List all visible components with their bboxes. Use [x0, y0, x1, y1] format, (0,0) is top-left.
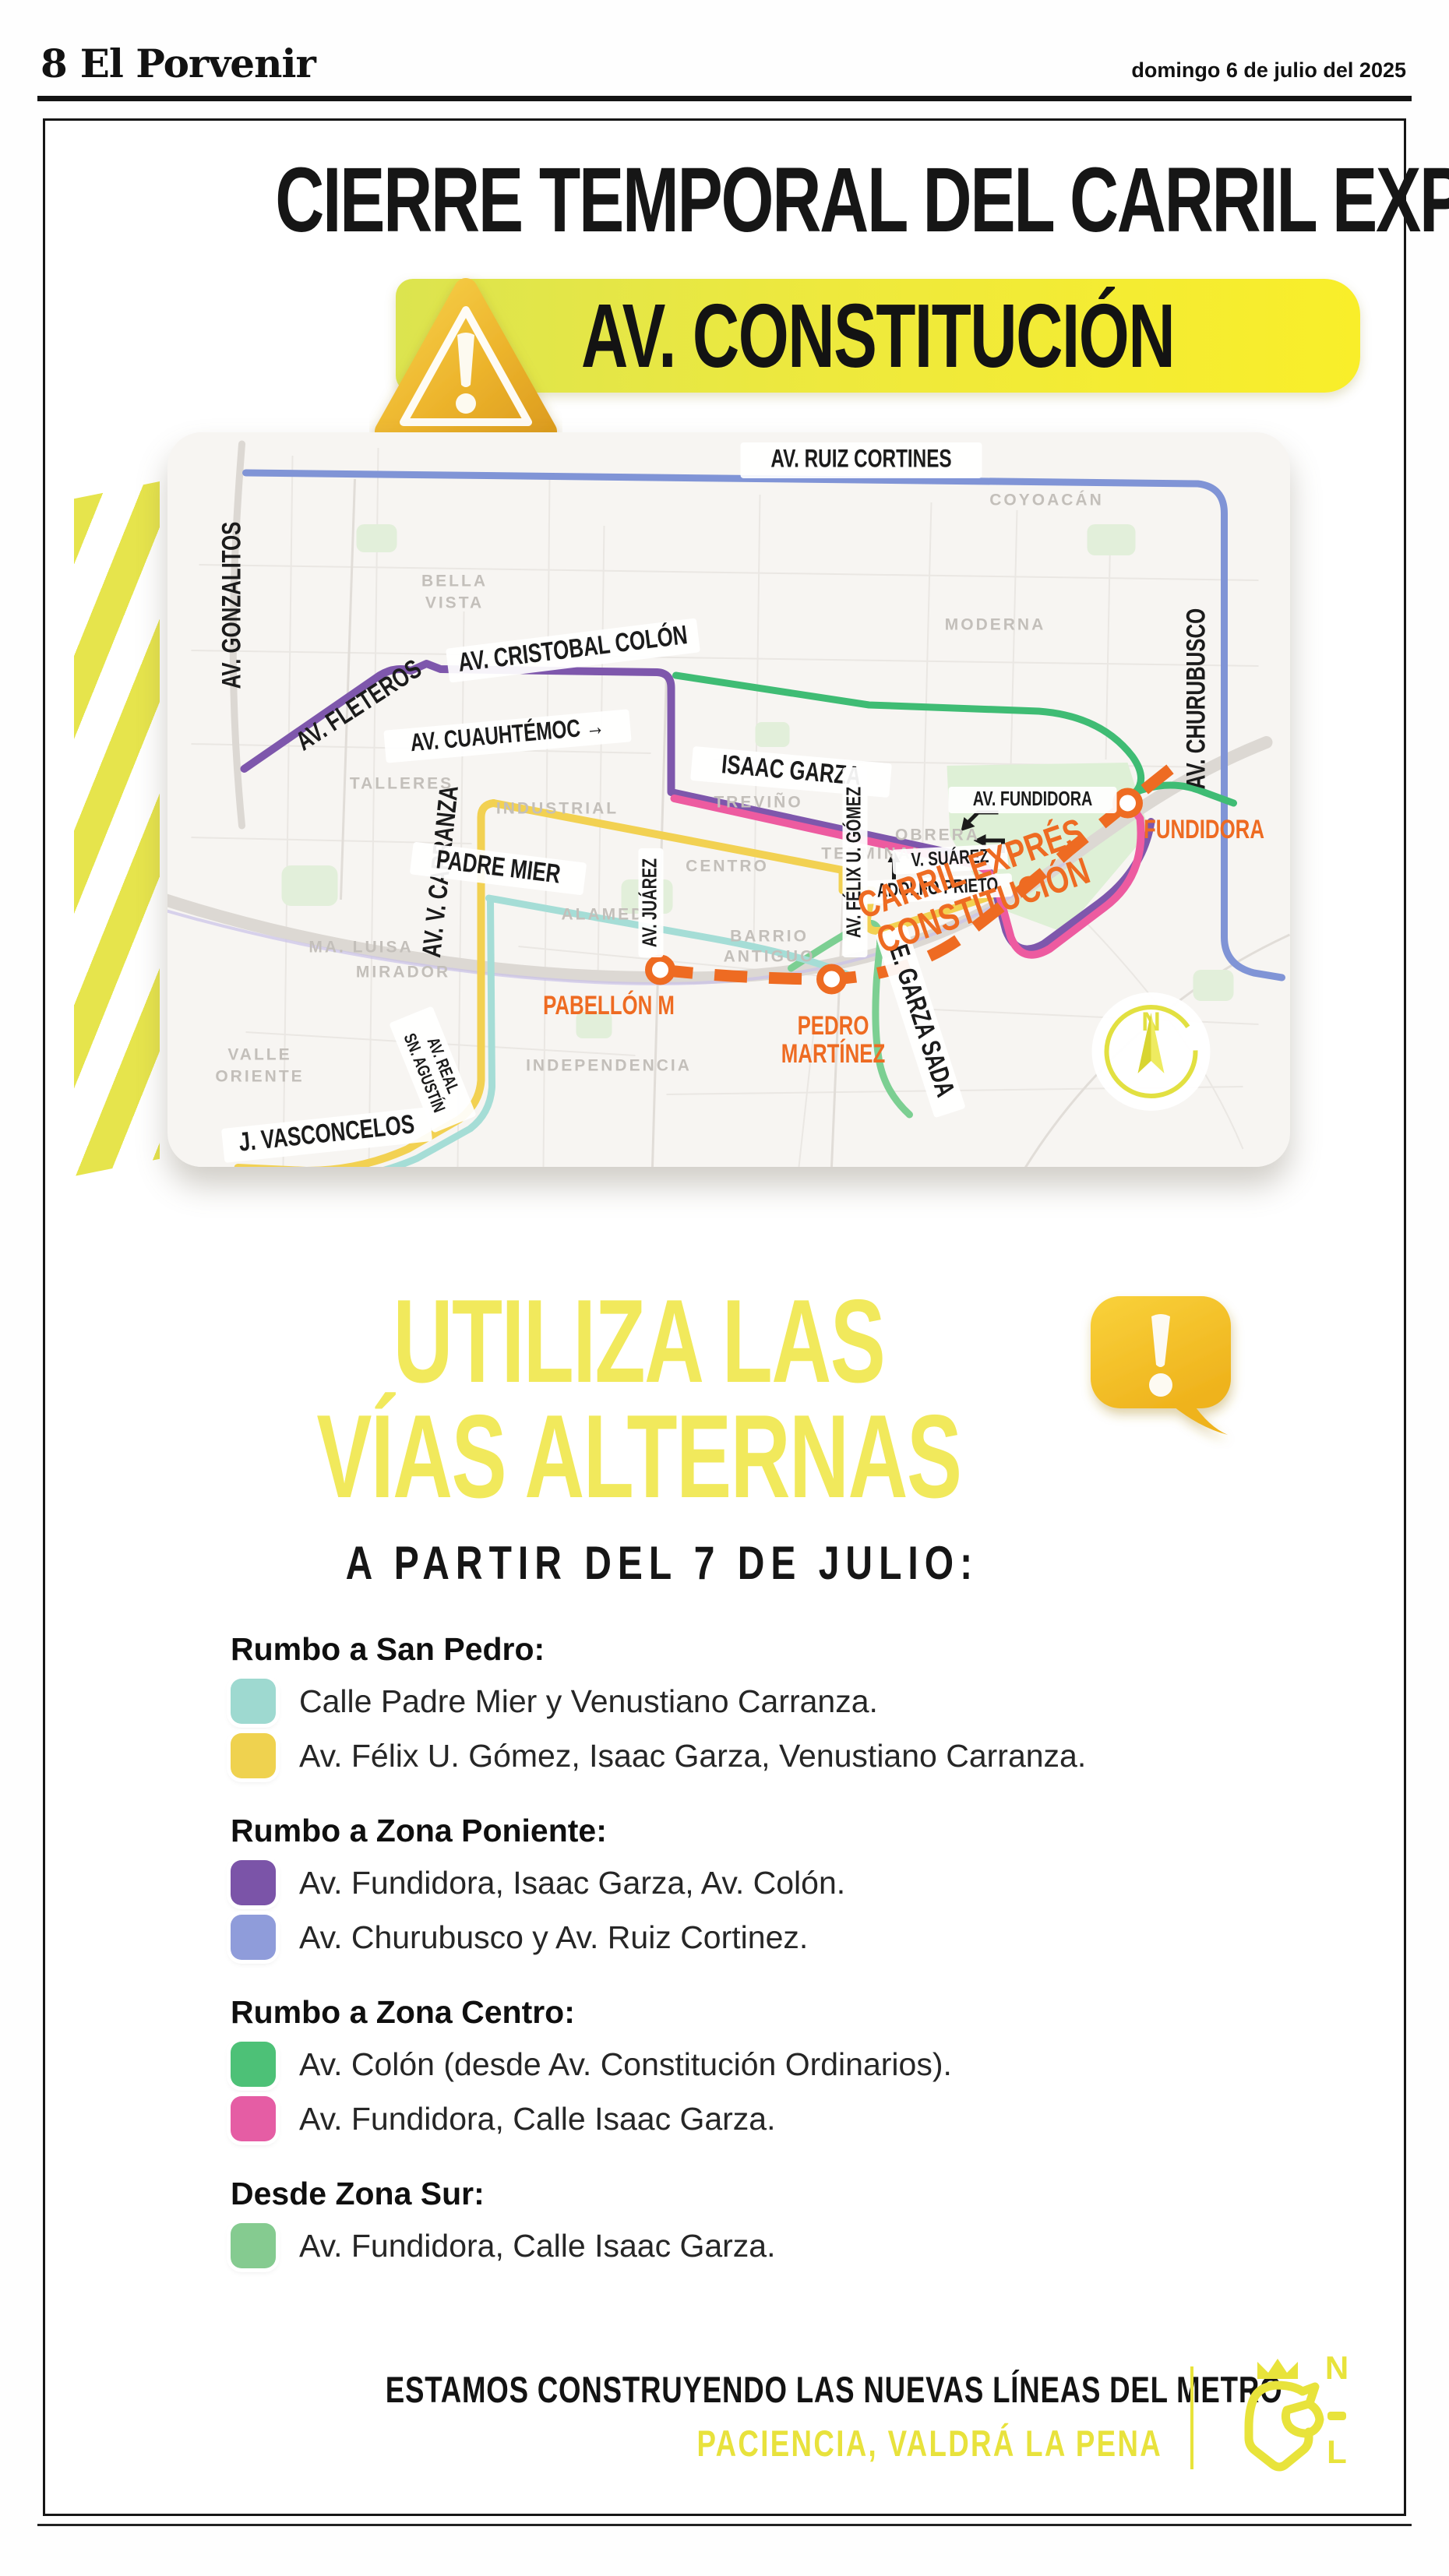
legend-item-text: Av. Fundidora, Isaac Garza, Av. Colón.: [299, 1865, 845, 1901]
legend-section-zona-poniente: Rumbo a Zona Poniente: Av. Fundidora, Is…: [231, 1813, 1228, 1960]
label-pabellon-m: PABELLÓN M: [543, 991, 675, 1020]
legend-item-text: Calle Padre Mier y Venustiano Carranza.: [299, 1683, 878, 1720]
page-number: 8: [41, 41, 68, 86]
label-fundidora: FUNDIDORA: [1144, 816, 1264, 844]
street-gonzalitos: AV. GONZALITOS: [217, 522, 246, 689]
alternas-line2: VÍAS ALTERNAS: [192, 1399, 1086, 1514]
paper-title: El Porvenir: [80, 41, 316, 86]
footer-message: ESTAMOS CONSTRUYENDO LAS NUEVAS LÍNEAS D…: [132, 2368, 1162, 2465]
city-map: BELLA VISTA COYOACÁN MODERNA TALLERES IN…: [167, 432, 1290, 1167]
area-centro: CENTRO: [686, 858, 769, 876]
legend-section-san-pedro: Rumbo a San Pedro: Calle Padre Mier y Ve…: [231, 1631, 1228, 1778]
legend-item: Calle Padre Mier y Venustiano Carranza.: [231, 1679, 1228, 1724]
legend-item: Av. Fundidora, Calle Isaac Garza.: [231, 2096, 1228, 2141]
alert-bubble-icon: [1075, 1285, 1270, 1449]
avenue-banner-label: AV. CONSTITUCIÓN: [581, 284, 1174, 388]
alternate-routes-legend: Rumbo a San Pedro: Calle Padre Mier y Ve…: [231, 1631, 1228, 2278]
legend-item: Av. Félix U. Gómez, Isaac Garza, Venusti…: [231, 1733, 1228, 1778]
alternas-line1: UTILIZA LAS: [192, 1284, 1086, 1399]
legend-item: Av. Churubusco y Av. Ruiz Cortinez.: [231, 1915, 1228, 1960]
top-rule: [37, 96, 1412, 101]
area-moderna: MODERNA: [945, 616, 1046, 634]
area-trevino: TREVIÑO: [714, 794, 802, 812]
area-coyoacan: COYOACÁN: [989, 492, 1104, 509]
page-title: CIERRE TEMPORAL DEL CARRIL EXPRÉS: [275, 153, 1449, 249]
area-independencia: INDEPENDENCIA: [526, 1057, 692, 1075]
legend-item-text: Av. Fundidora, Calle Isaac Garza.: [299, 2101, 776, 2137]
street-juarez: AV. JUÁREZ: [637, 858, 661, 947]
hazard-stripes-decoration: [74, 481, 160, 1176]
nuevo-leon-logo: N L: [1225, 2356, 1357, 2480]
legend-title: Desde Zona Sur:: [231, 2176, 1228, 2212]
hero-title-wrap: CIERRE TEMPORAL DEL CARRIL EXPRÉS: [43, 153, 1406, 249]
street-churubusco: AV. CHURUBUSCO: [1182, 608, 1211, 790]
masthead: 8 El Porvenir: [41, 41, 316, 86]
svg-text:MARTÍNEZ: MARTÍNEZ: [781, 1039, 885, 1069]
street-av-fundidora: AV. FUNDIDORA: [973, 787, 1093, 809]
footer-line2: PACIENCIA, VALDRÁ LA PENA: [696, 2422, 1162, 2465]
street-ruiz-cortines: AV. RUIZ CORTINES: [770, 445, 951, 473]
area-ma-luisa: MA. LUISA: [308, 939, 413, 957]
logo-letter-n: N: [1325, 2356, 1349, 2386]
legend-item-text: Av. Fundidora, Calle Isaac Garza.: [299, 2228, 776, 2264]
logo-letter-l: L: [1327, 2433, 1347, 2470]
area-industrial: INDUSTRIAL: [496, 800, 619, 818]
legend-item-text: Av. Félix U. Gómez, Isaac Garza, Venusti…: [299, 1738, 1086, 1774]
area-bella-vista: BELLA: [421, 573, 488, 590]
area-valle-oriente: VALLE: [227, 1046, 291, 1064]
footer-line1: ESTAMOS CONSTRUYENDO LAS NUEVAS LÍNEAS D…: [386, 2368, 1283, 2411]
svg-text:VISTA: VISTA: [425, 594, 484, 612]
effective-date: A PARTIR DEL 7 DE JULIO:: [346, 1536, 979, 1590]
legend-section-zona-sur: Desde Zona Sur: Av. Fundidora, Calle Isa…: [231, 2176, 1228, 2268]
route-swatch-lightgreen: [231, 2223, 276, 2268]
footer-divider: [1190, 2366, 1193, 2469]
svg-text:ANTIGUO: ANTIGUO: [724, 948, 816, 966]
label-pedro-martinez: PEDRO: [798, 1012, 869, 1041]
area-mirador: MIRADOR: [356, 964, 450, 981]
legend-title: Rumbo a Zona Poniente:: [231, 1813, 1228, 1849]
area-obrera: OBRERA: [895, 826, 980, 844]
station-pedro-martinez: [820, 967, 844, 991]
station-pabellon-m: [649, 958, 672, 981]
legend-item-text: Av. Colón (desde Av. Constitución Ordina…: [299, 2046, 952, 2083]
subtitle-wrap: A PARTIR DEL 7 DE JULIO:: [0, 1536, 1324, 1590]
legend-item: Av. Colón (desde Av. Constitución Ordina…: [231, 2042, 1228, 2087]
street-felix-u-gomez: AV. FÉLIX U. GÓMEZ: [841, 787, 865, 938]
legend-section-zona-centro: Rumbo a Zona Centro: Av. Colón (desde Av…: [231, 1994, 1228, 2141]
route-swatch-teal: [231, 1679, 276, 1724]
area-barrio-antiguo: BARRIO: [730, 928, 809, 946]
bottom-rule: [37, 2524, 1412, 2526]
map-svg: BELLA VISTA COYOACÁN MODERNA TALLERES IN…: [167, 432, 1290, 1167]
route-swatch-green: [231, 2042, 276, 2087]
legend-title: Rumbo a San Pedro:: [231, 1631, 1228, 1668]
edition-date: domingo 6 de julio del 2025: [1131, 58, 1406, 83]
newspaper-page: 8 El Porvenir domingo 6 de julio del 202…: [0, 0, 1449, 2576]
legend-item: Av. Fundidora, Isaac Garza, Av. Colón.: [231, 1860, 1228, 1905]
route-swatch-yellow: [231, 1733, 276, 1778]
station-fundidora: [1116, 791, 1140, 815]
legend-item-text: Av. Churubusco y Av. Ruiz Cortinez.: [299, 1919, 808, 1956]
legend-item: Av. Fundidora, Calle Isaac Garza.: [231, 2223, 1228, 2268]
svg-text:ORIENTE: ORIENTE: [215, 1068, 304, 1086]
route-swatch-periwinkle: [231, 1915, 276, 1960]
route-swatch-pink: [231, 2096, 276, 2141]
route-swatch-purple: [231, 1860, 276, 1905]
warning-triangle-icon: [369, 270, 562, 460]
legend-title: Rumbo a Zona Centro:: [231, 1994, 1228, 2031]
